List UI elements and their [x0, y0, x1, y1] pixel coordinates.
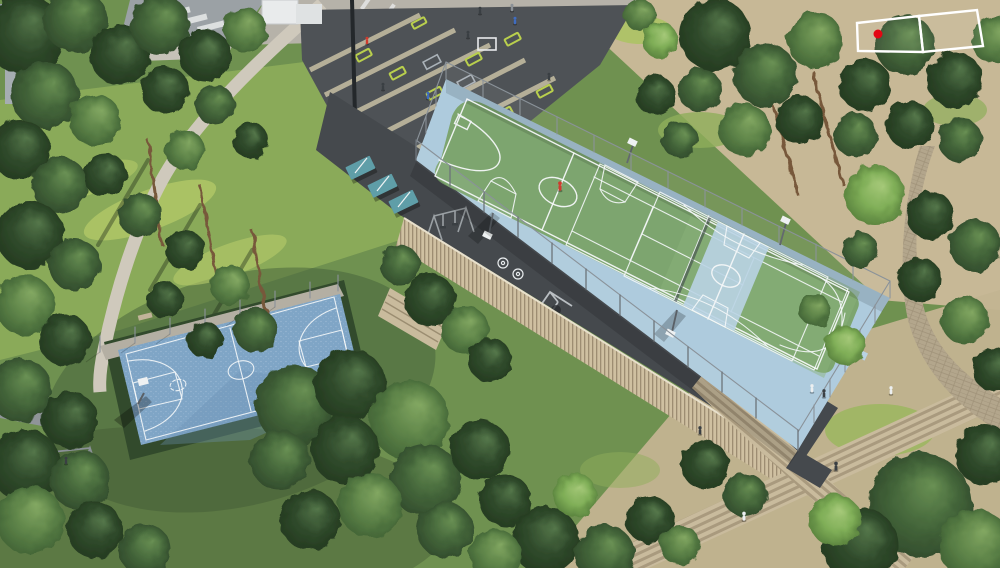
- aerial-park-render: [0, 0, 1000, 568]
- locator-cell-right: [919, 10, 983, 52]
- park-scene-canvas: [0, 0, 1000, 568]
- locator-cell-left: [857, 16, 923, 52]
- location-marker-icon: [874, 30, 883, 39]
- building-white: [262, 0, 298, 24]
